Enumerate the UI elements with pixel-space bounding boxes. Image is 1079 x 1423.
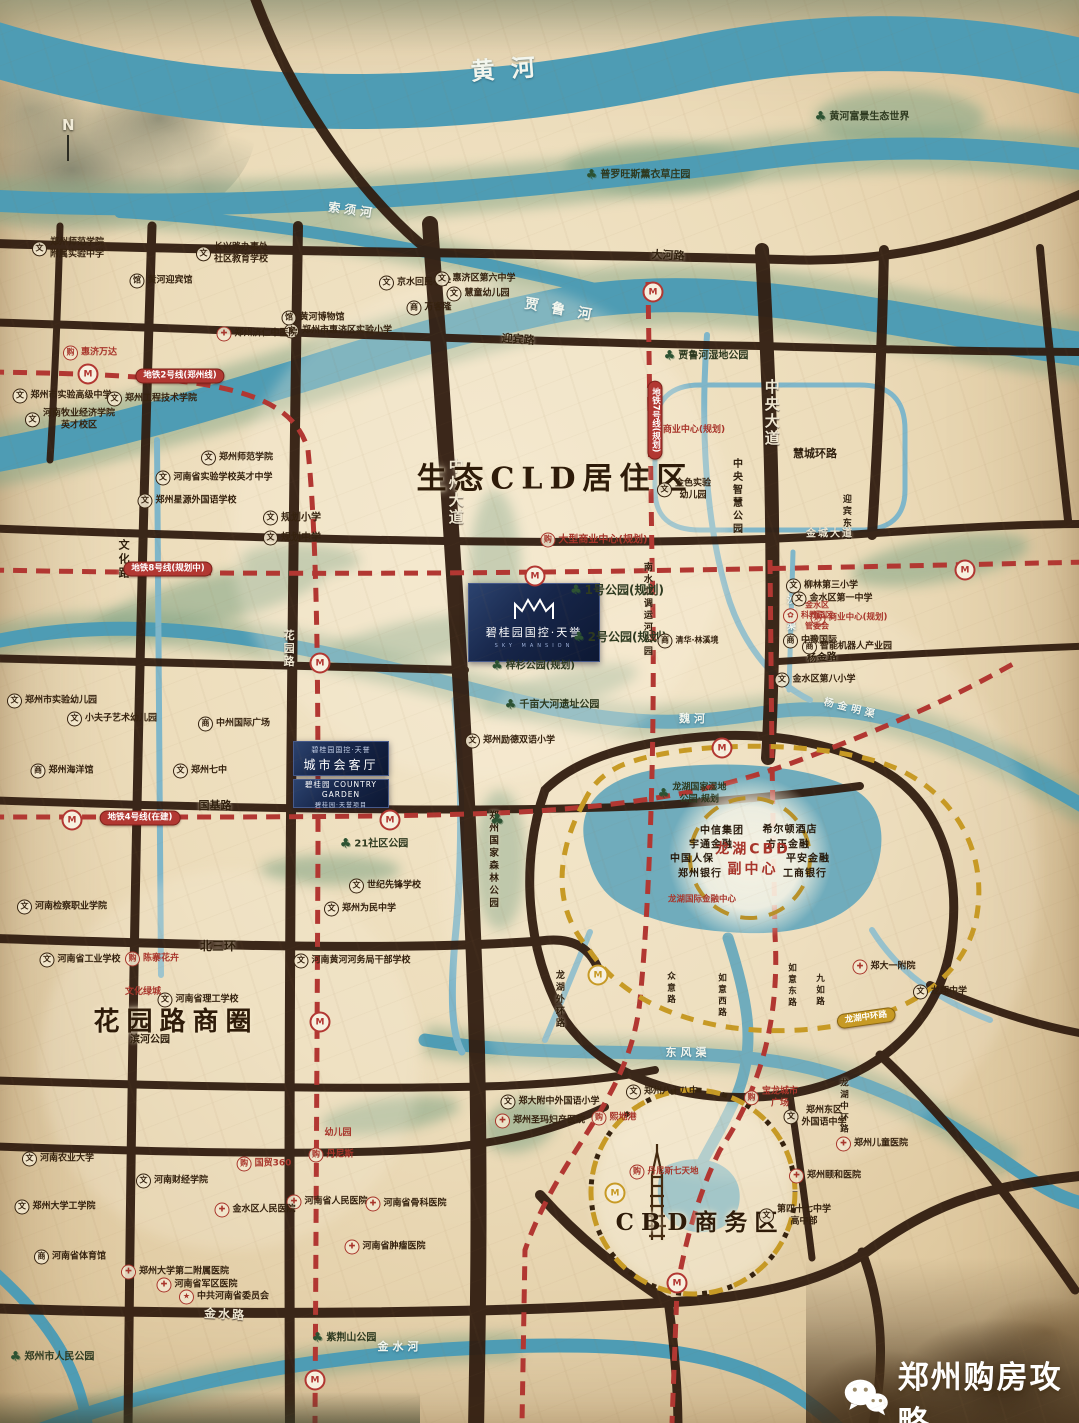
showroom-label: 城市会客厅 xyxy=(303,756,378,773)
compass-north: N xyxy=(62,118,75,161)
project-name: 碧桂园国控·天誉 xyxy=(486,624,583,640)
project-main-card: 碧桂园国控·天誉 SKY MANSION xyxy=(468,583,600,662)
project-logo-icon xyxy=(512,597,556,621)
project-subtitle: SKY MANSION xyxy=(495,643,574,649)
compass-needle xyxy=(67,135,69,161)
developer-project-label: 碧桂园·天誉项目 xyxy=(315,800,367,809)
showroom-project-name: 碧桂园国控·天誉 xyxy=(311,745,370,755)
hand-drawn-city-map: N 碧桂园国控·天誉 SKY MANSION 碧桂园国控·天誉 城市会客厅 碧桂… xyxy=(0,0,1079,1423)
developer-brand: 碧桂园 COUNTRY GARDEN xyxy=(294,779,388,799)
cbd-subcenter-circle xyxy=(668,776,832,940)
watermark: 郑州购房攻略 xyxy=(842,1352,1079,1423)
developer-brand-card: 碧桂园 COUNTRY GARDEN 碧桂园·天誉项目 xyxy=(293,779,389,808)
map-art-layer xyxy=(0,0,1079,1423)
compass-label: N xyxy=(62,118,75,133)
watermark-text: 郑州购房攻略 xyxy=(898,1352,1079,1423)
wechat-icon xyxy=(842,1375,890,1419)
project-showroom-card: 碧桂园国控·天誉 城市会客厅 xyxy=(293,741,389,776)
